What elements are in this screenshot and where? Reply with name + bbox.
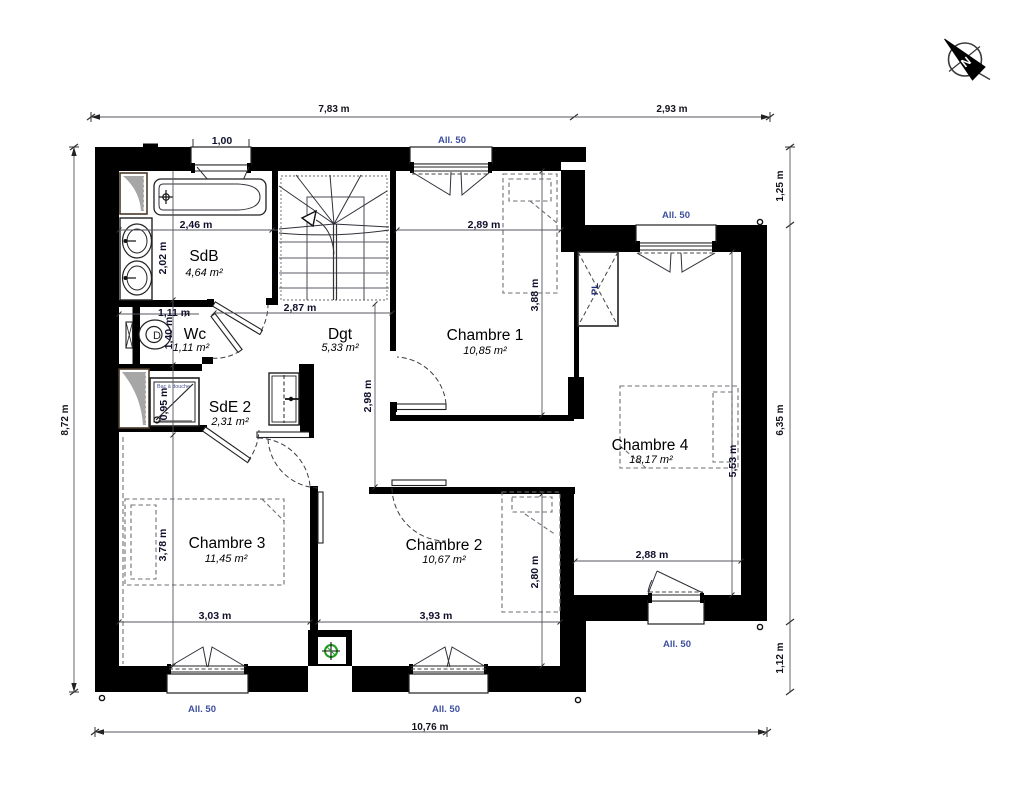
svg-text:10,67 m²: 10,67 m² xyxy=(422,554,466,566)
svg-text:3,03 m: 3,03 m xyxy=(199,610,232,622)
svg-text:2,02 m: 2,02 m xyxy=(157,242,169,275)
svg-text:Chambre 2: Chambre 2 xyxy=(406,537,483,554)
svg-text:2,80 m: 2,80 m xyxy=(529,556,541,589)
svg-text:2,88 m: 2,88 m xyxy=(636,549,669,561)
svg-text:8,72 m: 8,72 m xyxy=(60,404,71,435)
svg-text:SdB: SdB xyxy=(189,248,218,265)
svg-text:3,88 m: 3,88 m xyxy=(529,279,541,312)
svg-text:All. 50: All. 50 xyxy=(663,639,691,650)
svg-text:1,00: 1,00 xyxy=(212,135,233,147)
svg-text:1,12 m: 1,12 m xyxy=(775,642,786,673)
svg-text:2,93 m: 2,93 m xyxy=(656,104,687,115)
svg-text:D: D xyxy=(153,330,161,342)
svg-text:All. 50: All. 50 xyxy=(662,210,690,221)
svg-text:All. 50: All. 50 xyxy=(438,135,466,146)
svg-text:5,53 m: 5,53 m xyxy=(727,445,739,478)
svg-text:5,33 m²: 5,33 m² xyxy=(321,342,359,354)
svg-text:Dgt: Dgt xyxy=(328,326,353,343)
svg-text:1,11 m²: 1,11 m² xyxy=(173,342,210,354)
svg-text:7,83 m: 7,83 m xyxy=(318,104,349,115)
svg-text:18,17 m²: 18,17 m² xyxy=(629,454,673,466)
svg-text:2,89 m: 2,89 m xyxy=(468,219,501,231)
svg-text:All. 50: All. 50 xyxy=(188,704,216,715)
svg-text:3,93 m: 3,93 m xyxy=(420,610,453,622)
svg-text:PL: PL xyxy=(590,283,601,295)
svg-text:2,87 m: 2,87 m xyxy=(284,302,317,314)
svg-text:2,46 m: 2,46 m xyxy=(180,219,213,231)
svg-text:All. 50: All. 50 xyxy=(432,704,460,715)
svg-text:Wc: Wc xyxy=(184,326,207,343)
svg-text:10,85 m²: 10,85 m² xyxy=(463,345,507,357)
svg-text:SdE 2: SdE 2 xyxy=(209,399,251,416)
svg-text:Chambre 1: Chambre 1 xyxy=(447,327,524,344)
svg-text:2,98 m: 2,98 m xyxy=(362,380,374,413)
svg-text:2,31 m²: 2,31 m² xyxy=(210,416,249,428)
svg-text:3,78 m: 3,78 m xyxy=(157,529,169,562)
svg-text:11,45 m²: 11,45 m² xyxy=(205,553,248,565)
svg-text:10,76 m: 10,76 m xyxy=(412,722,449,733)
svg-text:1,25 m: 1,25 m xyxy=(775,170,786,201)
svg-text:Chambre 4: Chambre 4 xyxy=(612,437,689,454)
svg-text:0,95 m: 0,95 m xyxy=(158,388,170,421)
svg-text:4,64 m²: 4,64 m² xyxy=(185,267,223,279)
svg-text:Chambre 3: Chambre 3 xyxy=(189,535,266,552)
svg-text:6,35 m: 6,35 m xyxy=(775,404,786,435)
